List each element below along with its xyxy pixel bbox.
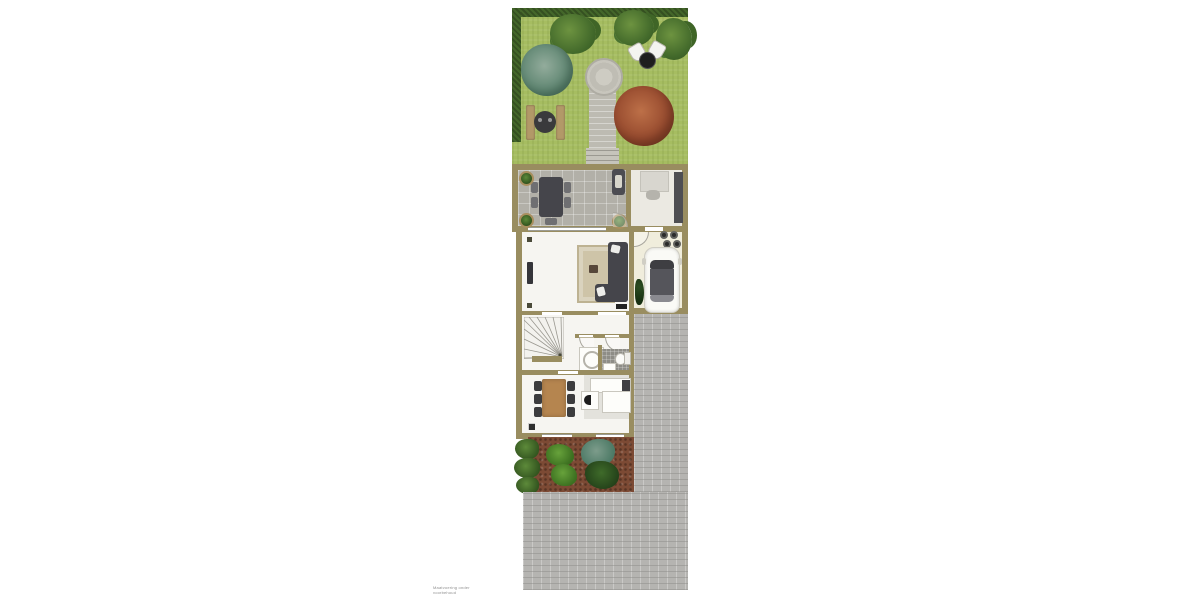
cooktop-circle <box>670 231 678 239</box>
car-windshield <box>650 260 674 269</box>
floor-vent <box>528 423 535 430</box>
shrub-icon <box>515 439 539 459</box>
wall-fixture <box>527 303 532 308</box>
cooktop-circle <box>673 240 681 248</box>
sofa-pillow <box>610 244 620 254</box>
tree-icon <box>614 10 654 46</box>
terrace-chair <box>564 182 571 193</box>
potted-plant-icon <box>519 171 534 186</box>
car-mirror <box>642 258 646 265</box>
red-tree-icon <box>614 86 674 146</box>
dining-chair <box>534 381 542 391</box>
wall <box>682 232 688 309</box>
picnic-bench <box>556 105 565 140</box>
terrace-chair <box>545 218 557 225</box>
office-cabinet <box>674 172 683 223</box>
dining-chair <box>567 394 575 404</box>
wall-fixture <box>527 237 532 242</box>
terrace-chair <box>564 197 571 208</box>
bed-plant-icon <box>546 444 574 466</box>
hedge-top <box>512 8 688 17</box>
potted-plant-icon <box>519 213 534 228</box>
stone-circle-patio <box>585 58 623 96</box>
sideboard <box>527 262 533 284</box>
bed-plant-icon <box>551 464 577 486</box>
door-opening <box>558 371 578 374</box>
picnic-table <box>534 111 556 133</box>
terrace-chair <box>531 182 538 193</box>
flower-bed <box>528 437 635 492</box>
car-mirror <box>678 258 682 265</box>
floor-plan-canvas: { "scene": { "type": "site-floor-plan", … <box>0 0 1200 600</box>
terrace-chair <box>531 197 538 208</box>
dining-chair <box>567 407 575 417</box>
office-chair <box>646 190 660 200</box>
dining-chair <box>567 381 575 391</box>
heater-inner <box>615 175 622 188</box>
car-roof <box>650 269 674 295</box>
car <box>644 247 680 313</box>
kitchen-counter <box>602 391 631 413</box>
kitchen-sink-bowl <box>584 395 591 405</box>
office-desk <box>640 171 669 192</box>
paved-driveway <box>634 314 688 492</box>
terrace-sliding-window <box>528 227 606 231</box>
dining-chair <box>534 407 542 417</box>
bed-plant-icon <box>585 461 619 489</box>
dining-chair <box>534 394 542 404</box>
coffee-table <box>589 265 598 273</box>
stair-wall <box>532 356 562 362</box>
hedge-left <box>512 8 521 142</box>
fridge <box>622 380 630 391</box>
paved-driveway <box>523 492 688 590</box>
office-door-opening <box>645 227 663 231</box>
tv-unit <box>616 304 627 309</box>
bistro-table <box>639 52 656 69</box>
cooktop-circle <box>660 231 668 239</box>
car-rear-window <box>650 295 674 302</box>
winder-staircase <box>524 317 564 359</box>
teal-tree-icon <box>521 44 573 96</box>
watermark-text: Maatvoering onder voorbehoud <box>433 585 493 595</box>
outdoor-heater <box>612 169 625 195</box>
terrace-dining-table <box>539 177 563 217</box>
dining-table <box>542 379 566 417</box>
toilet-tank <box>624 352 631 365</box>
shrub-icon <box>514 458 540 478</box>
garage-plant-icon <box>635 279 644 305</box>
